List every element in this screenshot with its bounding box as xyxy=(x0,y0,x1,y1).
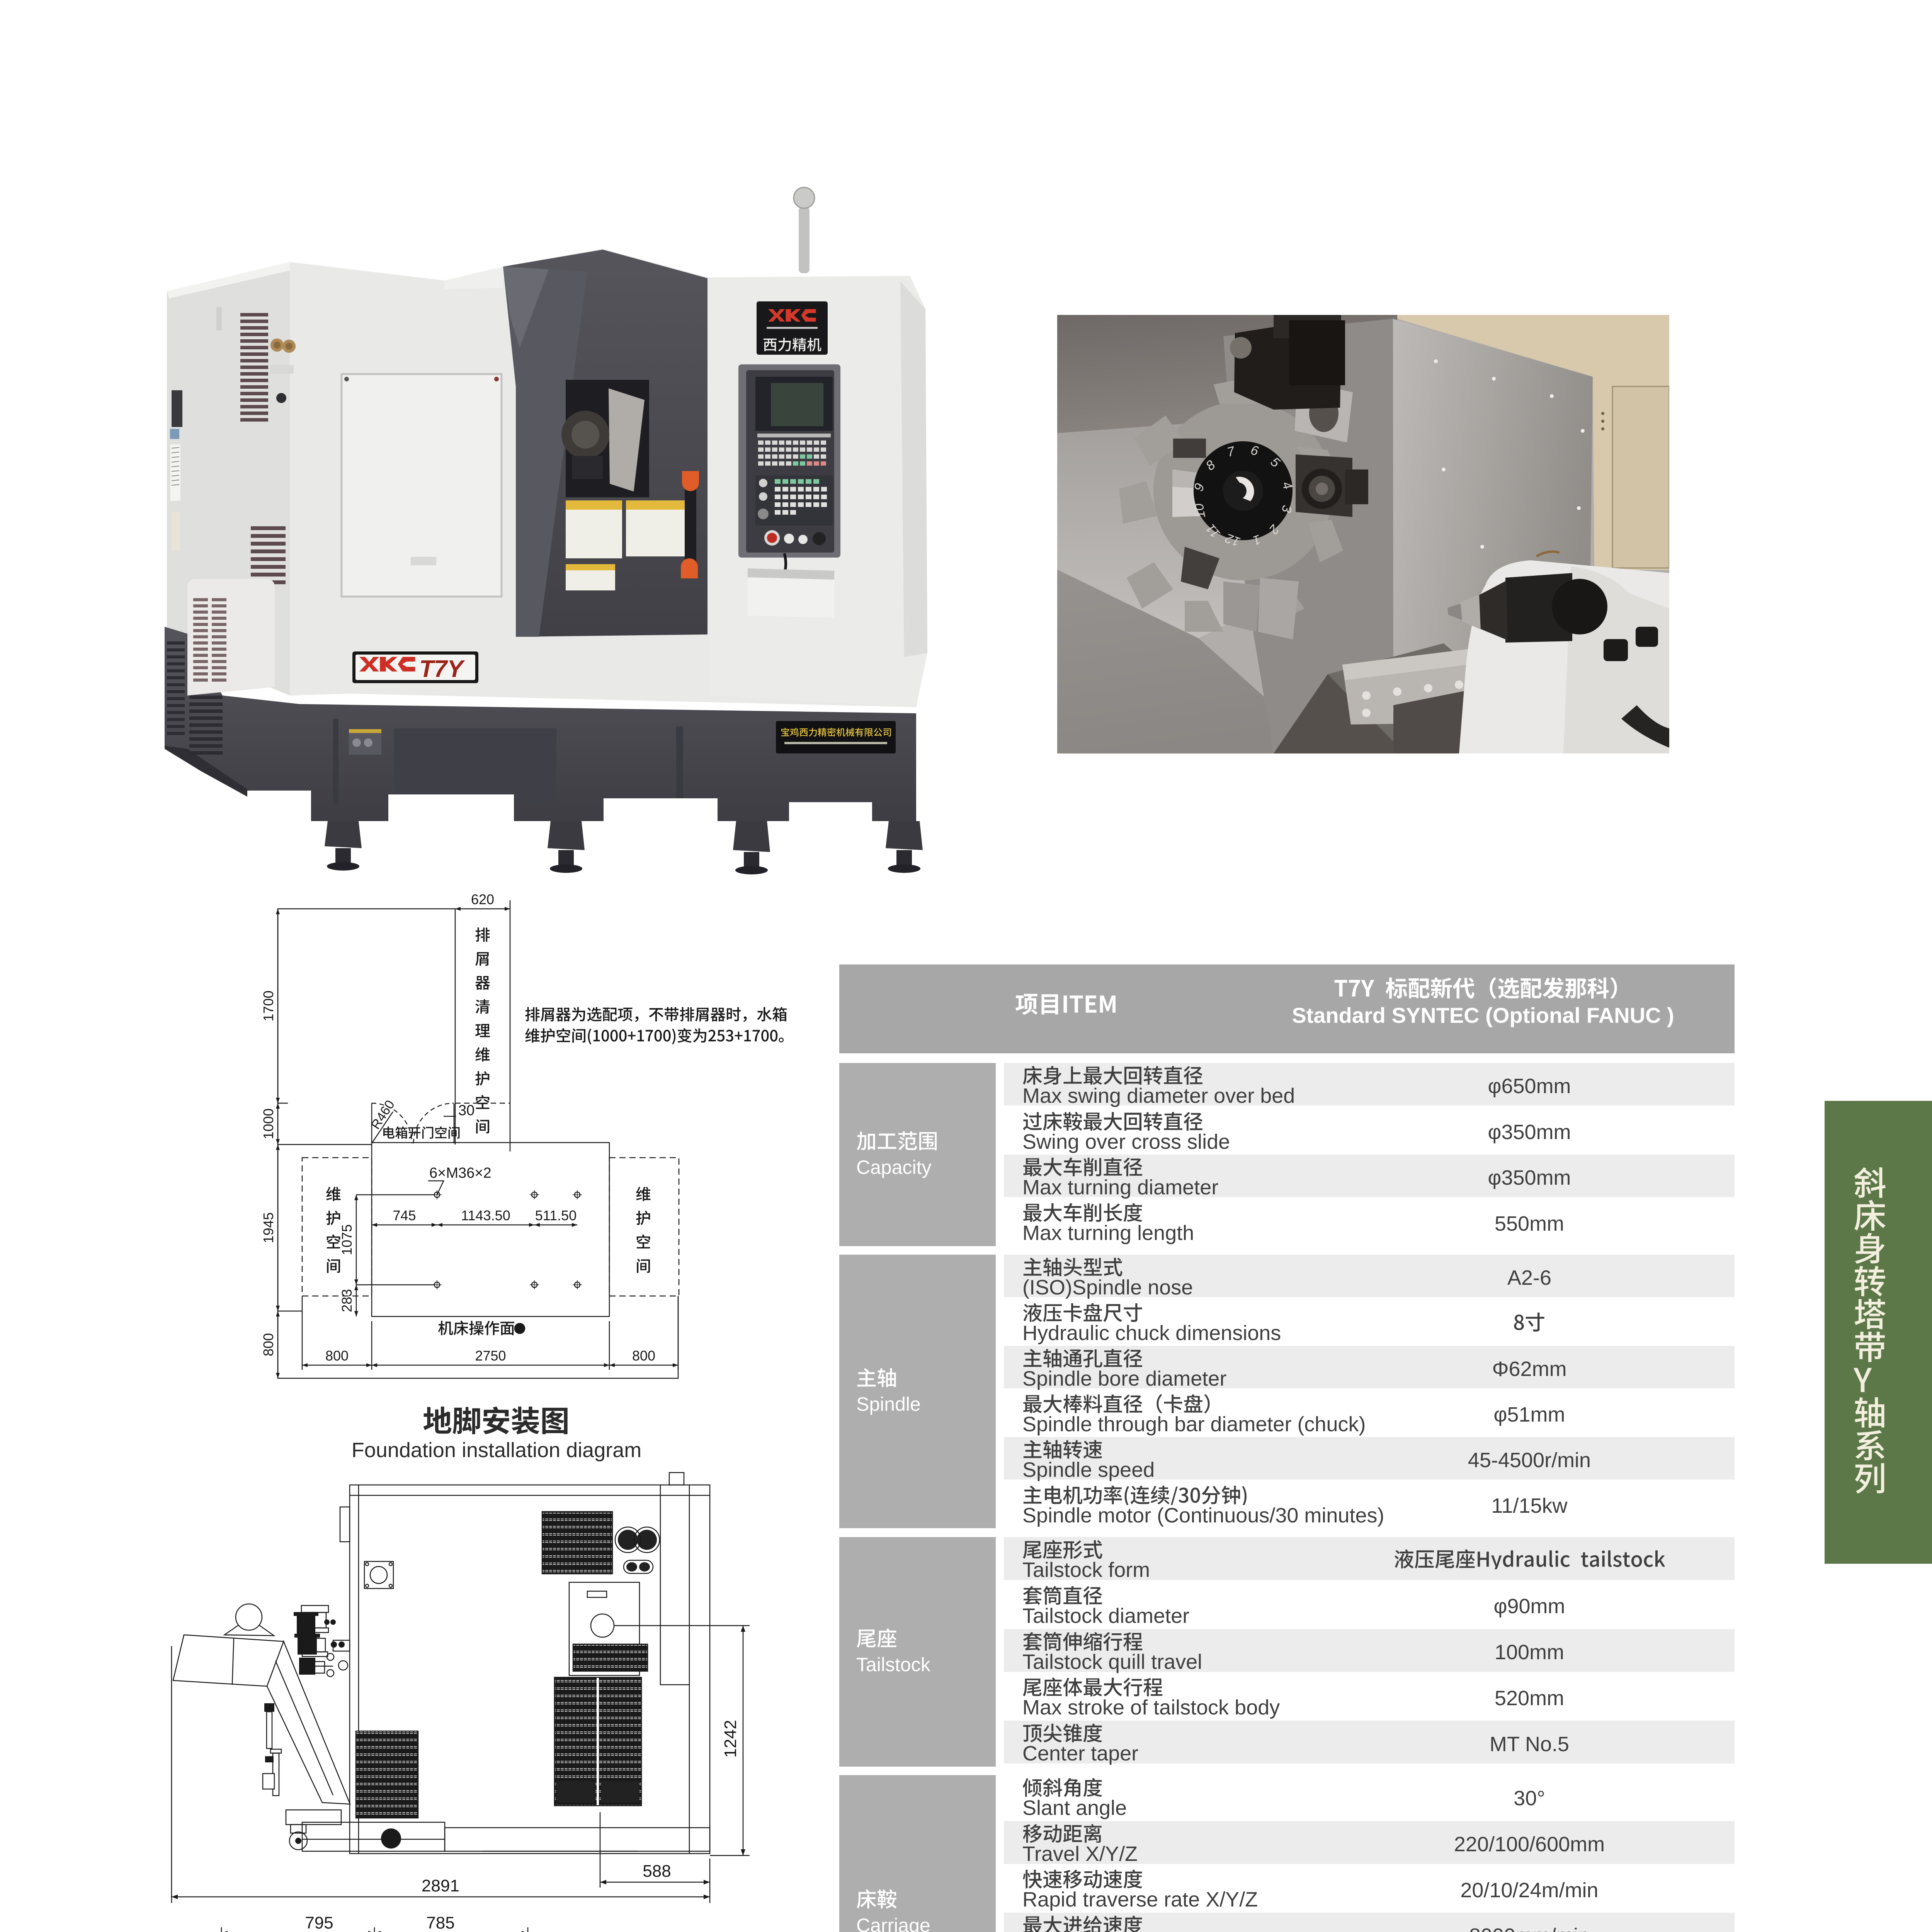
svg-text:1000: 1000 xyxy=(260,1108,276,1139)
svg-text:745: 745 xyxy=(393,1207,416,1223)
svg-text:2750: 2750 xyxy=(475,1348,506,1364)
svg-text:800: 800 xyxy=(632,1348,655,1364)
svg-text:785: 785 xyxy=(426,1913,454,1932)
svg-text:1143.50: 1143.50 xyxy=(461,1207,510,1223)
svg-text:800: 800 xyxy=(260,1333,276,1356)
svg-text:6×M36×2: 6×M36×2 xyxy=(429,1165,492,1181)
svg-text:588: 588 xyxy=(643,1862,671,1881)
svg-text:620: 620 xyxy=(471,891,494,907)
svg-text:1700: 1700 xyxy=(260,990,276,1021)
svg-text:1242: 1242 xyxy=(721,1720,740,1758)
svg-text:2891: 2891 xyxy=(422,1876,459,1895)
svg-text:1945: 1945 xyxy=(260,1212,276,1243)
svg-text:800: 800 xyxy=(325,1348,349,1364)
svg-text:10: 10 xyxy=(1191,502,1208,519)
svg-text:1075: 1075 xyxy=(339,1224,355,1255)
svg-text:30: 30 xyxy=(458,1102,474,1119)
svg-text:795: 795 xyxy=(305,1913,333,1932)
svg-text:283: 283 xyxy=(339,1289,355,1312)
svg-text:T7Y: T7Y xyxy=(419,656,465,682)
svg-text:511.50: 511.50 xyxy=(535,1207,577,1223)
